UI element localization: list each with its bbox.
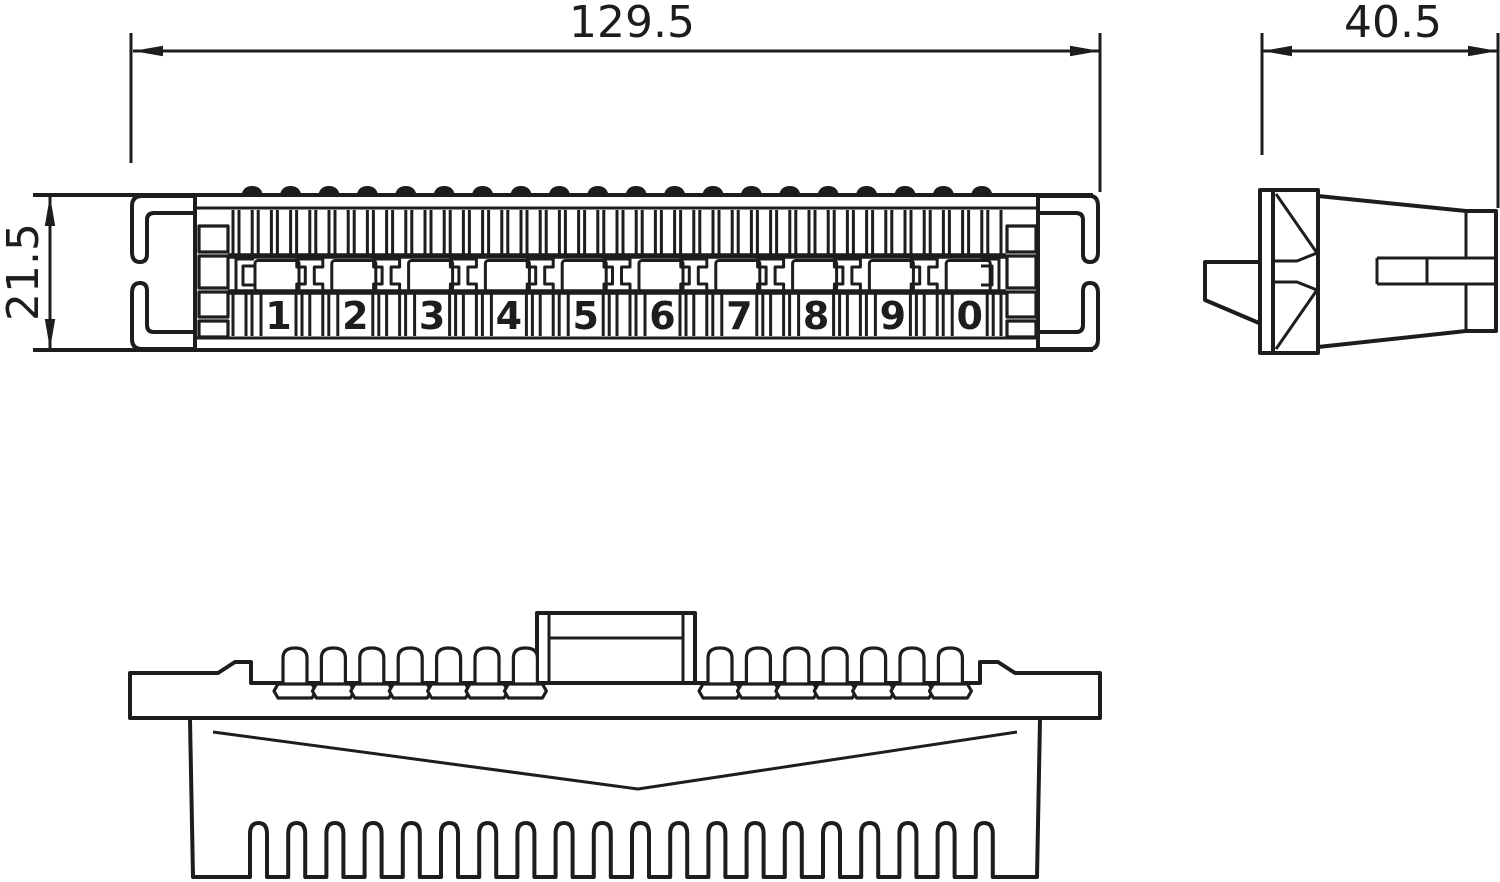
left-pin-foot — [389, 684, 431, 698]
front-view: 129.5 21.5 — [0, 0, 1100, 350]
end-cap-segment — [199, 321, 228, 337]
right-pin-loop — [938, 648, 962, 684]
wire-guide-horn — [1205, 262, 1260, 323]
pair-number-label: 5 — [572, 294, 598, 338]
tab-outline — [537, 613, 695, 684]
contact-bump-icon — [511, 187, 531, 195]
technical-drawing-canvas: 129.5 21.5 — [0, 0, 1500, 882]
right-pin-loop — [900, 648, 924, 684]
contact-bump-icon — [549, 187, 569, 195]
left-pin-loop — [398, 648, 422, 684]
right-pin-foot — [891, 684, 933, 698]
front-width-dimension: 129.5 — [131, 0, 1100, 192]
end-cap-segment — [199, 226, 228, 252]
arrowhead-right-icon — [1070, 46, 1100, 56]
link-box — [255, 261, 299, 292]
i-beam-separator — [681, 259, 707, 292]
front-width-label: 129.5 — [569, 0, 695, 48]
link-box — [485, 261, 529, 292]
left-pin-loop — [475, 648, 499, 684]
contact-bump-icon — [626, 187, 646, 195]
side-width-label: 40.5 — [1344, 0, 1442, 48]
right-mounting-clip — [1040, 196, 1098, 349]
contact-bump-icon — [434, 187, 454, 195]
contact-fork-slot — [1377, 258, 1496, 284]
front-height-label: 21.5 — [0, 223, 49, 321]
right-pin-loop — [785, 648, 809, 684]
arrowhead-left-icon — [133, 46, 163, 56]
contact-bump-icon — [242, 187, 262, 195]
front-height-dimension: 21.5 — [0, 196, 55, 349]
i-beam-separator — [297, 259, 323, 292]
left-pin-foot — [312, 684, 354, 698]
contact-bump-icon — [281, 187, 301, 195]
side-view: 40.5 — [1205, 0, 1498, 353]
contact-bump-icon — [741, 187, 761, 195]
bottom-view — [130, 613, 1100, 877]
right-pin-loop — [862, 648, 886, 684]
clip-lower-hook — [1040, 283, 1098, 349]
left-pin-loop — [360, 648, 384, 684]
right-pin-foot — [853, 684, 895, 698]
center-test-tab — [537, 613, 695, 684]
left-pin-loop — [513, 648, 537, 684]
left-pin-foot — [351, 684, 393, 698]
contact-bump-icon — [357, 187, 377, 195]
contact-bump-icon — [703, 187, 723, 195]
link-box — [639, 261, 683, 292]
left-pin-loop — [283, 648, 307, 684]
comb-teeth-outline — [190, 720, 1040, 877]
i-beam-separator — [604, 259, 630, 292]
arrowhead-up-icon — [45, 196, 55, 226]
pair-number-label: 3 — [419, 294, 445, 338]
left-pin-foot — [504, 684, 546, 698]
clip-lower-hook — [132, 283, 196, 349]
pair-number-label: 2 — [342, 294, 368, 338]
pair-number-label: 9 — [880, 294, 906, 338]
contact-bump-icon — [972, 187, 992, 195]
body-profile — [1318, 196, 1496, 347]
right-pin-foot — [929, 684, 971, 698]
left-pin-foot — [466, 684, 508, 698]
contact-bump-icon — [780, 187, 800, 195]
contact-bump-icon — [319, 187, 339, 195]
contact-bump-icon — [665, 187, 685, 195]
right-pin-foot — [737, 684, 779, 698]
i-beam-separator — [527, 259, 553, 292]
left-pin-loop — [437, 648, 461, 684]
contact-bump-icon — [473, 187, 493, 195]
contact-bump-icon — [588, 187, 608, 195]
right-pin-loop — [823, 648, 847, 684]
end-cap-segment — [199, 256, 228, 288]
contact-bump-icon — [857, 187, 877, 195]
i-beam-separator — [450, 259, 476, 292]
i-beam-separator — [911, 259, 937, 292]
arrowhead-left-icon — [1262, 46, 1292, 56]
pair-number-label: 1 — [265, 294, 291, 338]
upper-contact-comb — [233, 210, 1001, 254]
right-pin-foot — [776, 684, 818, 698]
end-cap-segment — [199, 292, 228, 317]
link-box — [332, 261, 376, 292]
terminal-strip-drawing: 129.5 21.5 — [0, 0, 1500, 882]
link-box — [562, 261, 606, 292]
contact-bumps — [242, 187, 992, 195]
contact-bump-icon — [818, 187, 838, 195]
link-box — [409, 261, 453, 292]
wiring-side-body — [190, 720, 1040, 877]
right-end-cap — [1007, 226, 1036, 337]
right-pin-loop — [746, 648, 770, 684]
left-pin-loop — [321, 648, 345, 684]
right-pin-foot — [814, 684, 856, 698]
middle-band-left-bracket — [236, 259, 254, 292]
link-box — [716, 261, 760, 292]
arrowhead-down-icon — [45, 319, 55, 349]
isolation-link-band — [255, 259, 990, 292]
arrowhead-right-icon — [1468, 46, 1498, 56]
right-pin-loop — [708, 648, 732, 684]
pair-number-label: 7 — [726, 294, 752, 338]
right-pin-foot — [699, 684, 741, 698]
clip-upper-hook — [1040, 196, 1098, 262]
contact-bump-icon — [933, 187, 953, 195]
end-cap-segment — [1007, 256, 1036, 288]
link-box — [793, 261, 837, 292]
pair-number-label: 6 — [649, 294, 675, 338]
end-cap-segment — [1007, 226, 1036, 252]
link-box — [869, 261, 913, 292]
contact-bump-icon — [396, 187, 416, 195]
clip-upper-hook — [132, 196, 196, 262]
end-cap-segment — [1007, 292, 1036, 317]
pair-number-label: 4 — [496, 294, 522, 338]
i-beam-separator — [758, 259, 784, 292]
contact-bump-icon — [895, 187, 915, 195]
pair-number-label: 0 — [956, 294, 982, 338]
left-mounting-clip — [132, 196, 196, 349]
i-beam-separator — [374, 259, 400, 292]
pair-number-label: 8 — [803, 294, 829, 338]
i-beam-separator — [834, 259, 860, 292]
end-cap-segment — [1007, 321, 1036, 337]
left-pin-foot — [274, 684, 316, 698]
inner-chamfer-v-line — [213, 732, 1017, 789]
left-pin-foot — [428, 684, 470, 698]
left-end-cap — [199, 226, 228, 337]
side-width-dimension: 40.5 — [1262, 0, 1498, 208]
